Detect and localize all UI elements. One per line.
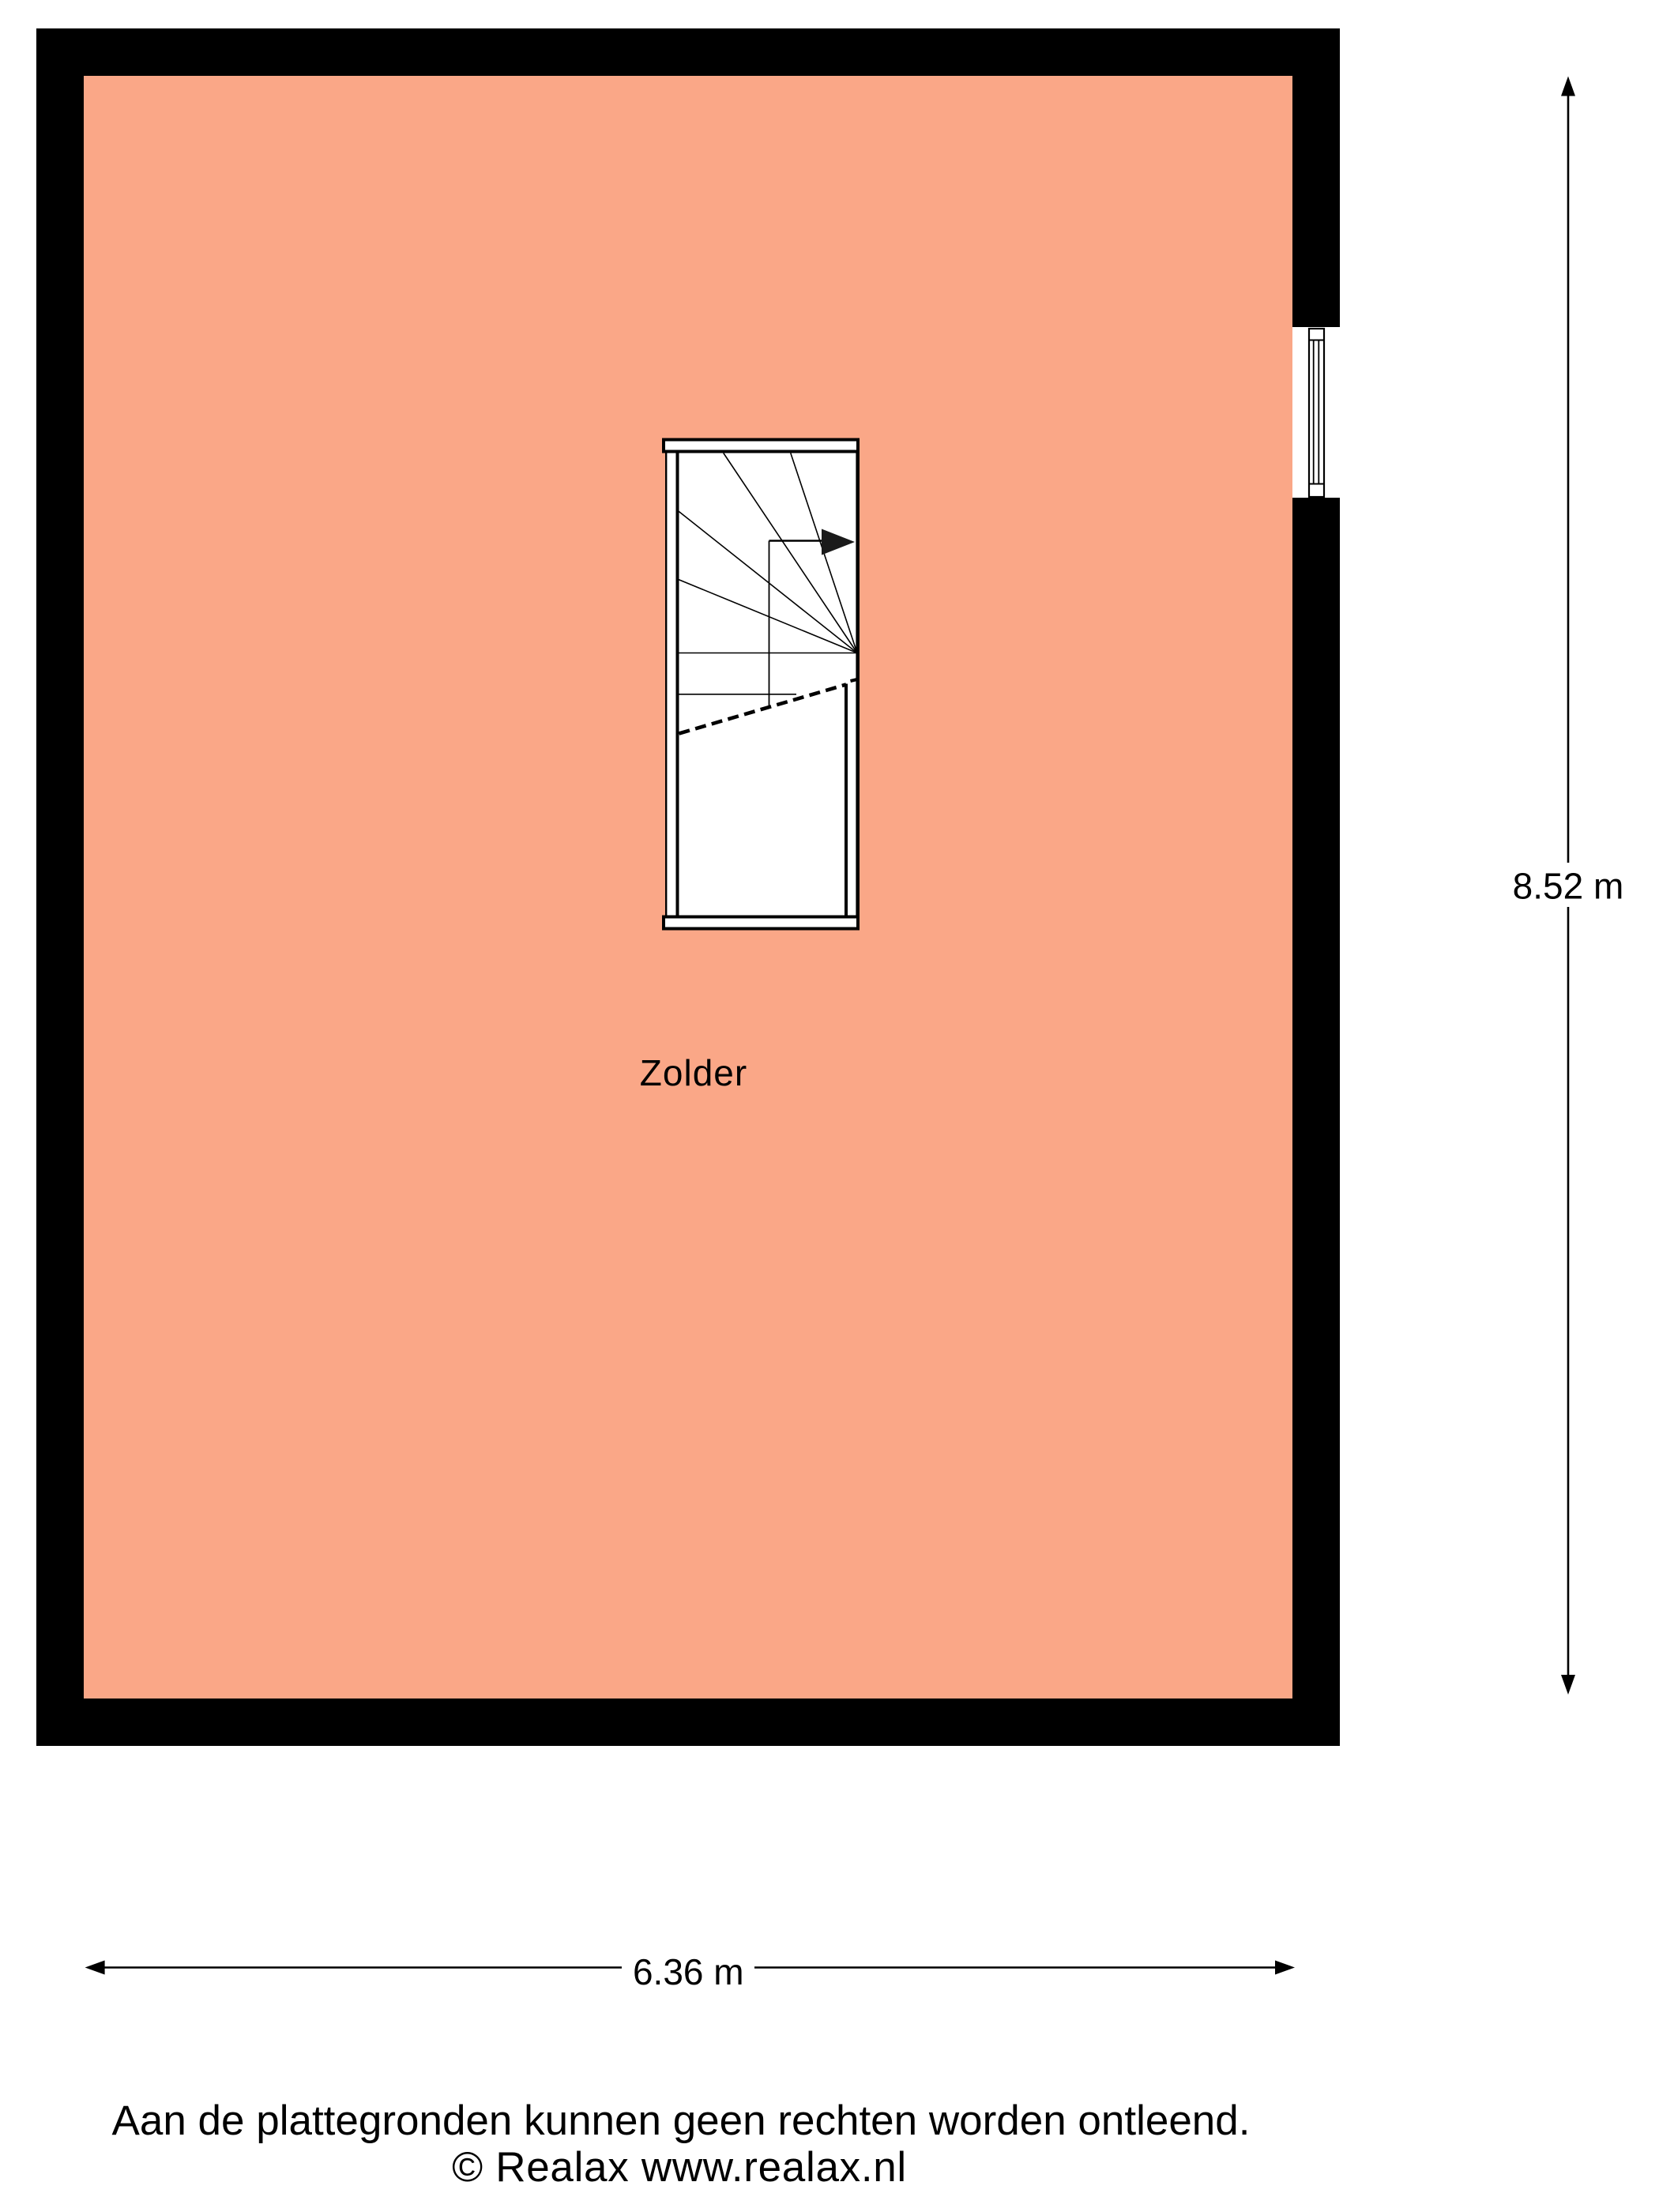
svg-text:6.36 m: 6.36 m [633,1951,744,1992]
svg-text:8.52 m: 8.52 m [1513,866,1624,907]
svg-text:Aan de plattegronden kunnen ge: Aan de plattegronden kunnen geen rechten… [112,2097,1251,2144]
svg-text:Zolder: Zolder [640,1052,747,1093]
svg-text:© Realax www.realax.nl: © Realax www.realax.nl [452,2144,907,2191]
